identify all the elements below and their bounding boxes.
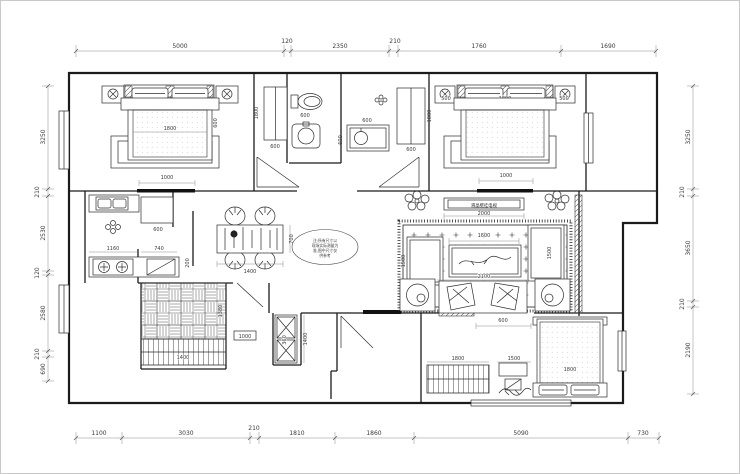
dim-bed2-right: 500 [559,96,569,102]
dim-label: 3250 [40,129,47,144]
dim-cloak-ward: 1400 [177,355,190,361]
floor-plan-sheet: 1800 600 1000 600 1800 600 600 600 600 1… [0,0,740,474]
dim-label: 3250 [685,129,692,144]
dim-label: 2530 [40,225,47,240]
sofa-pillow [491,283,519,310]
side-table [407,237,443,285]
dim-top: 5000 120 2350 210 1760 1690 [74,38,658,57]
note-line4: 供参考 [319,253,331,258]
dim-vanity-w: 600 [362,118,372,124]
dim-label: 210 [34,348,41,360]
dining: 1400 700 [217,207,295,275]
dim-sofa: 2100 [478,274,491,280]
dim-table: 1600 [478,233,491,239]
dim-label: 5090 [513,430,528,437]
dim-counter: 1160 [107,246,120,252]
dim-left: 3250 210 2530 120 2580 210 690 [34,84,54,383]
dim-shelf: 1000 [239,334,252,340]
dim-label: 3650 [685,240,692,255]
dim-label: 2190 [685,342,692,357]
dim-label: 210 [34,186,41,198]
dim-label: 1860 [366,430,381,437]
dim-label: 210 [248,425,260,432]
kitchen: 600 1160 740 200 [89,195,191,277]
dim-side-left: 1500 [401,255,407,268]
basin [292,124,320,148]
dining-table [217,225,283,253]
drain-icon [106,221,121,234]
dim-label: 1100 [91,430,106,437]
dim-bed3-desk: 1500 [508,356,521,362]
living-room: 液晶壁挂电视 2000 1500 1500 1600 2100 [399,191,571,313]
dim-bottom: 1100 3030 210 1810 1860 5090 730 [74,425,661,444]
dim-ward-left-h: 1800 [254,107,260,120]
armchair [400,279,435,311]
dim-bed3-ward: 1800 [452,356,465,362]
dim-entry: 600 [498,318,508,324]
plant-icon [405,191,429,210]
dim-depth: 200 [185,258,191,268]
dim-side-right: 1500 [547,247,553,260]
dim-label: 1810 [289,430,304,437]
dim-label: 5000 [172,43,187,50]
bedroom1: 1800 600 1000 [102,85,238,186]
tv-label: 液晶壁挂电视 [471,202,497,209]
dim-label: 2350 [332,43,347,50]
dim-toilet: 600 [300,113,310,119]
dim-bed2-door: 1000 [500,173,513,179]
chair [225,207,245,225]
dim-tile: 1380 [218,305,224,318]
dim-dining-w: 1400 [244,269,257,275]
dim-label: 120 [281,38,293,45]
dim-bed1-door: 1000 [161,175,174,181]
dim-bed2-left: 500 [441,96,451,102]
fridge [141,197,173,223]
dim-label: 730 [637,430,649,437]
bedroom2: 500 1800 500 1000 [435,85,575,184]
toilet-tank [291,95,298,108]
dim-dining-d: 700 [289,234,295,244]
table-plant [231,231,238,238]
dim-label: 210 [679,298,686,310]
dim-cabinet: 360 [282,335,288,345]
dim-label: 3030 [178,430,193,437]
dim-label: 120 [34,267,41,279]
floor-plan-drawing: 1800 600 1000 600 1800 600 600 600 600 1… [1,1,740,474]
dim-label: 690 [40,363,47,375]
sofa-pillow [447,283,475,310]
dim-label: 1690 [600,43,615,50]
chair [255,251,275,269]
console [528,225,564,281]
drain-icon [375,95,387,105]
dim-cabinet-h: 1400 [303,333,309,346]
chair [225,251,245,269]
wall-hatch-pier [575,195,582,313]
bed-bench [454,98,556,110]
dim-cabinet: 740 [154,246,164,252]
dim-bed3-bed: 1800 [564,367,577,373]
dim-tv: 2000 [478,211,491,217]
toilet [298,94,322,110]
chair [255,207,275,225]
bedroom3: 600 1800 1500 1800 [427,317,607,397]
armchair [535,279,570,311]
dim-ward-right-h: 1800 [427,110,433,123]
dim-label: 210 [389,38,401,45]
vanity [347,125,389,151]
dim-vanity-d: 600 [338,135,344,145]
dim-right: 3250 210 3650 210 2190 [679,84,699,396]
dim-bed1: 1800 [164,126,177,132]
bath-zone: 600 1800 600 600 600 600 1800 [254,87,433,153]
counter [89,195,139,212]
dim-fridge: 600 [153,227,163,233]
note-bubble: 注:所有尺寸以 现场实际测量为 准,图中尺寸仅 供参考 [292,230,358,265]
desk [499,363,527,376]
tile-floor [141,283,226,339]
dim-ward-right: 600 [406,147,416,153]
bed-bench [121,98,219,110]
plant-icon [545,191,569,210]
dim-ward-left: 600 [270,144,280,150]
cloak-room: 1380 1400 1000 360 1400 [141,283,309,365]
dim-label: 1760 [471,43,486,50]
dim-label: 2580 [40,305,47,320]
dim-label: 210 [679,186,686,198]
dim-bed1-side: 600 [213,118,219,128]
